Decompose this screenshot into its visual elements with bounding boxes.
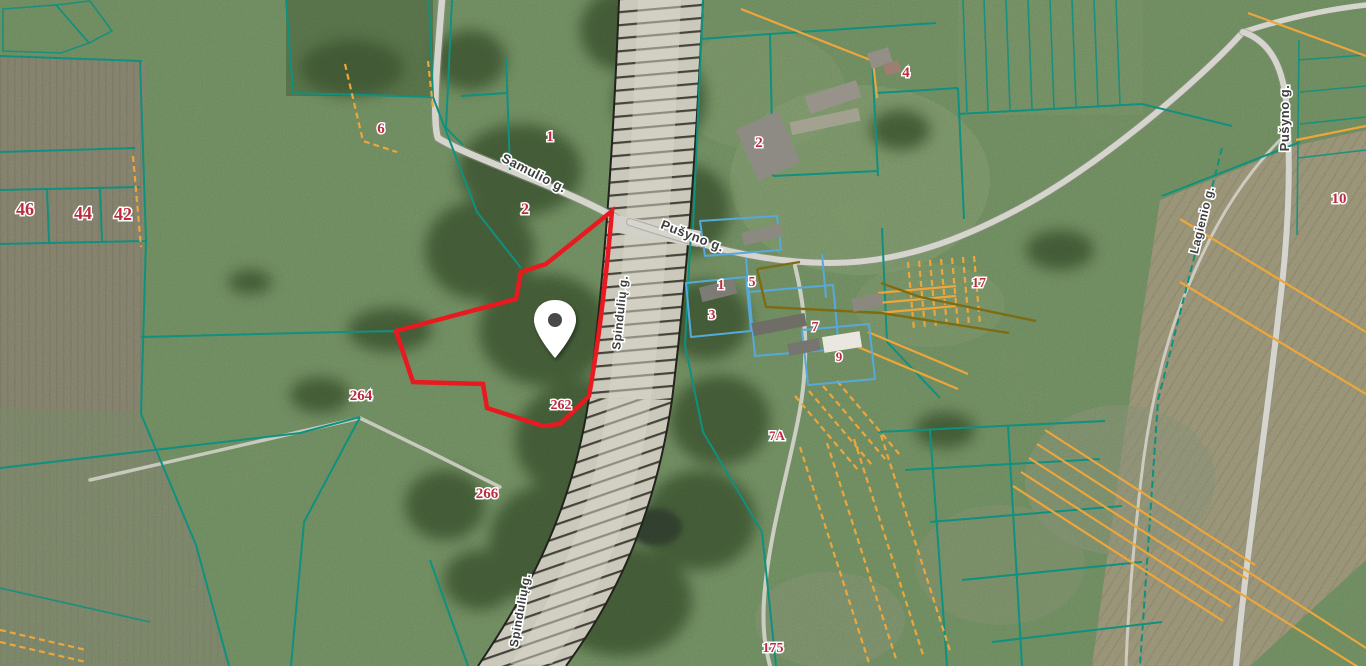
- parcel-number-label: 266: [476, 486, 499, 502]
- parcel-number-label: 46: [16, 199, 34, 219]
- parcel-number-label: 262: [551, 398, 572, 413]
- parcel-number-label: 42: [114, 204, 132, 224]
- parcel-number-label: 175: [763, 641, 784, 656]
- parcel-number-label: 3: [709, 308, 716, 323]
- satellite-map: Samulio g.Pušyno g.Pušyno g.Lagienio g.S…: [0, 0, 1366, 666]
- parcel-number-label: 2: [755, 135, 763, 151]
- parcel-number-label: 5: [749, 275, 756, 290]
- map-canvas[interactable]: Samulio g.Pušyno g.Pušyno g.Lagienio g.S…: [0, 0, 1366, 666]
- parcel-number-label: 1: [718, 278, 725, 293]
- pin-hole: [548, 313, 562, 327]
- parcel-number-label: 1: [546, 129, 554, 145]
- street-name-label: Pušyno g.: [1277, 85, 1292, 152]
- parcel-number-label: 2: [521, 201, 529, 218]
- parcel-number-label: 7A: [769, 428, 786, 443]
- parcel-number-label: 9: [836, 349, 843, 364]
- parcel-number-label: 264: [350, 388, 373, 404]
- parcel-number-label: 6: [377, 121, 385, 137]
- parcel-number-label: 7: [812, 320, 819, 335]
- parcel-number-label: 4: [902, 65, 910, 81]
- parcel-number-label: 17: [972, 276, 986, 291]
- parcel-number-label: 44: [74, 203, 92, 223]
- parcel-number-label: 10: [1332, 191, 1347, 207]
